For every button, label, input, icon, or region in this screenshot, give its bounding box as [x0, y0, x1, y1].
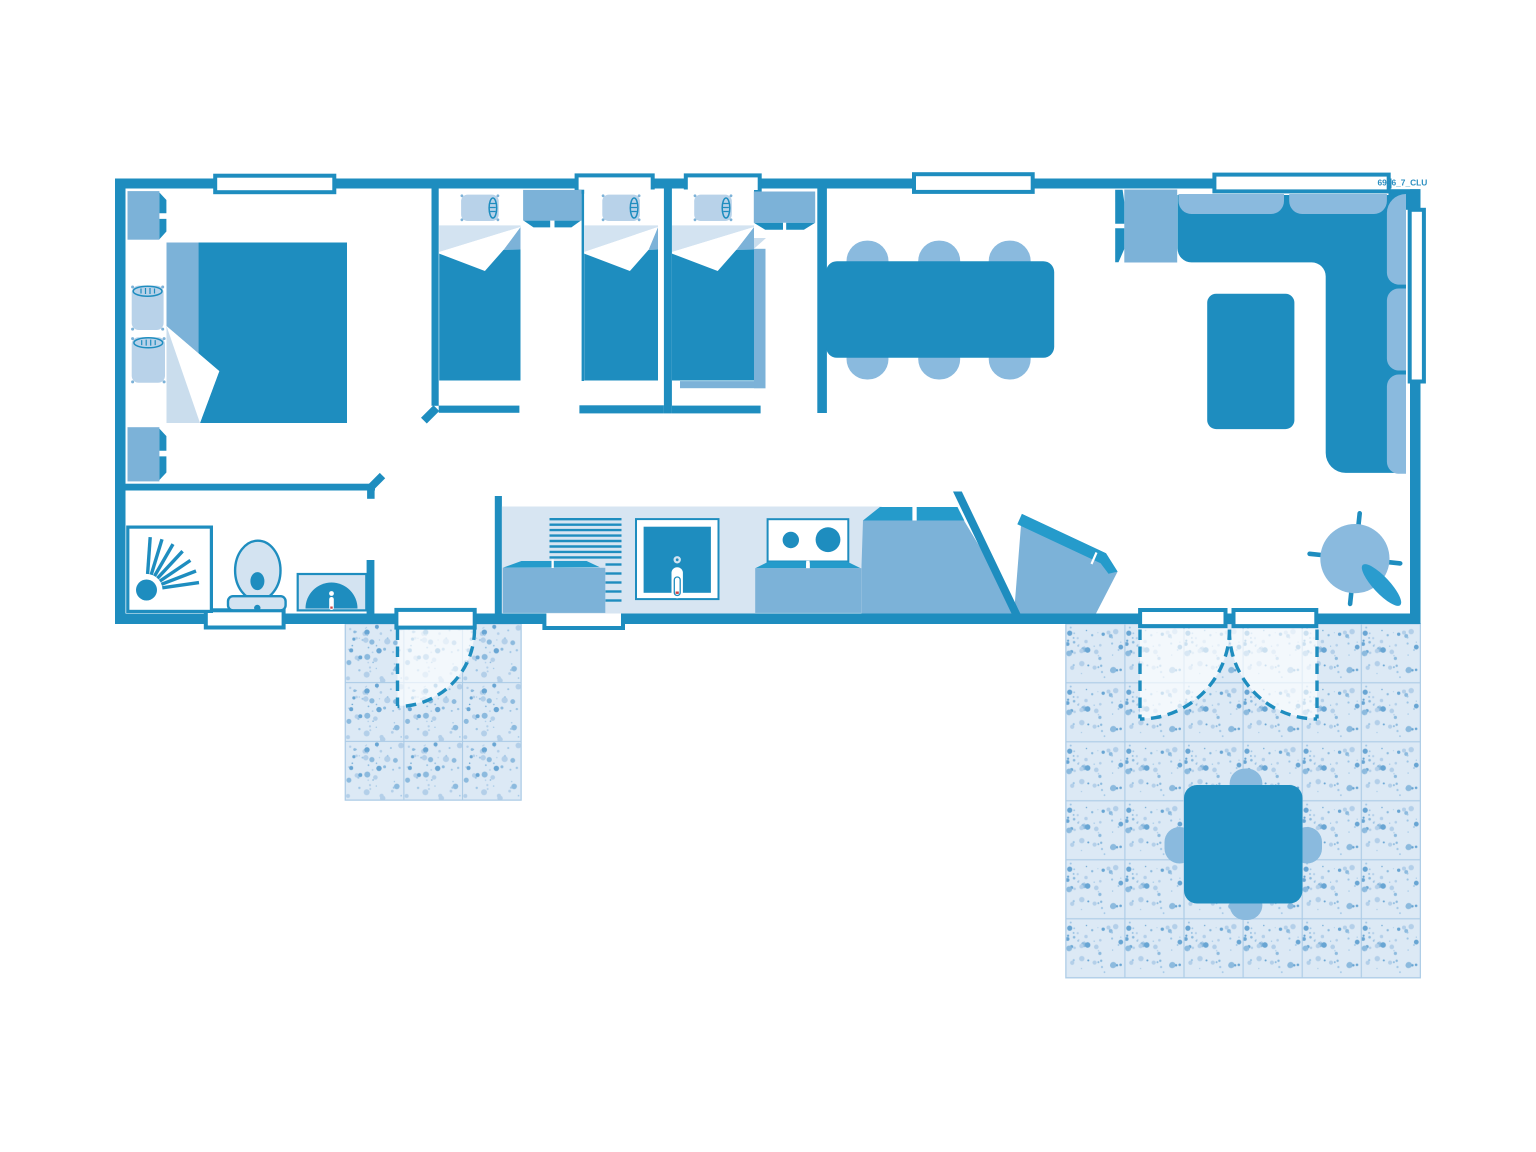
svg-text:6996_7_CLU: 6996_7_CLU: [1378, 178, 1428, 188]
